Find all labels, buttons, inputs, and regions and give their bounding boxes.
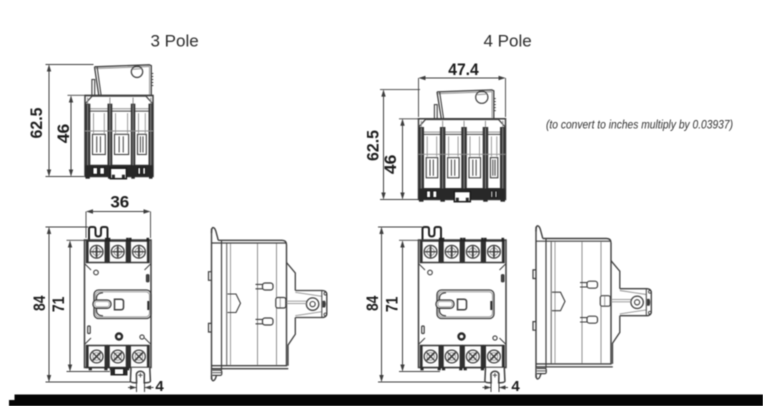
svg-text:4: 4: [155, 378, 164, 395]
svg-text:(to convert to inches multiply: (to convert to inches multiply by 0.0393…: [546, 117, 733, 131]
svg-text:84: 84: [30, 295, 49, 311]
svg-text:62.5: 62.5: [363, 130, 382, 161]
svg-text:3 Pole: 3 Pole: [151, 32, 199, 51]
svg-text:47.4: 47.4: [448, 60, 479, 79]
svg-text:4: 4: [511, 378, 520, 395]
svg-text:46: 46: [54, 124, 73, 144]
svg-text:71: 71: [49, 297, 68, 313]
svg-text:36: 36: [110, 192, 129, 211]
svg-text:71: 71: [382, 297, 401, 313]
svg-text:84: 84: [363, 295, 382, 311]
svg-text:62.5: 62.5: [27, 108, 46, 139]
svg-text:46: 46: [381, 155, 400, 175]
svg-text:4 Pole: 4 Pole: [484, 32, 532, 51]
